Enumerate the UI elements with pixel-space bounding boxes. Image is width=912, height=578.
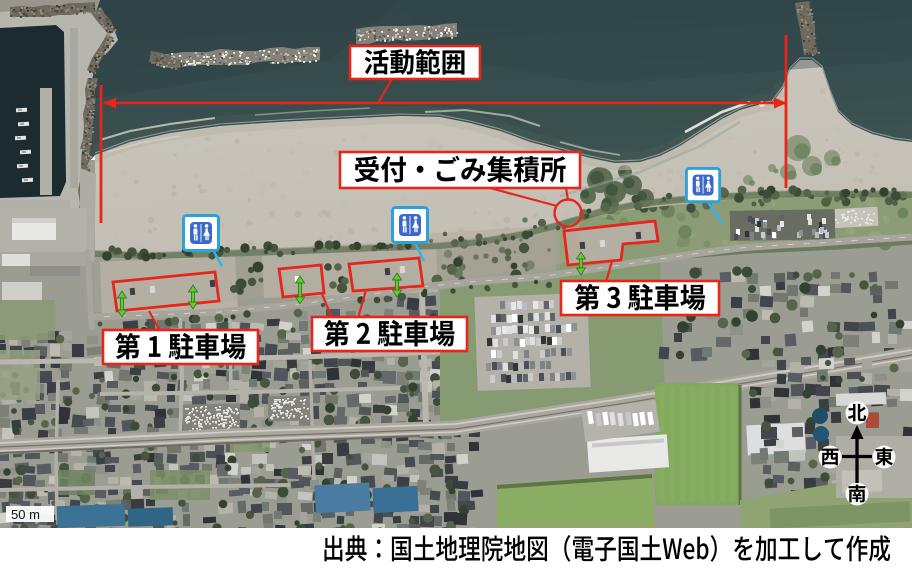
svg-text:50 m: 50 m [11, 507, 40, 522]
